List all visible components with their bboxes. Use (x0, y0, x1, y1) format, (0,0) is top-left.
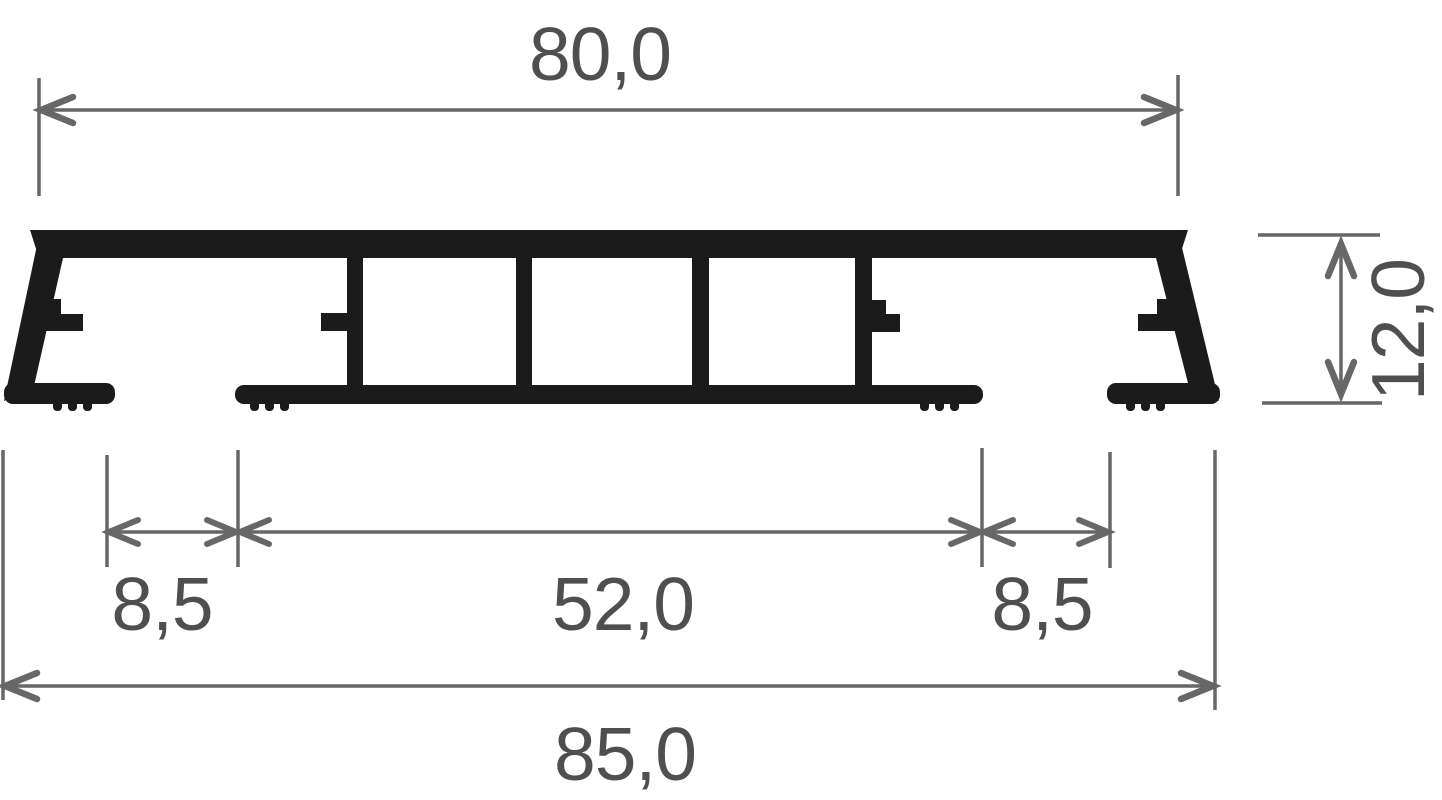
profile-right-foot-teeth (1126, 399, 1165, 411)
profile-cross-section (4, 230, 1220, 411)
label-center-width: 52,0 (552, 562, 694, 646)
label-right-gap: 8,5 (991, 562, 1092, 646)
profile-web-1 (347, 256, 363, 388)
profile-web-2 (516, 256, 532, 388)
profile-right-web-tab (872, 314, 900, 332)
label-left-gap: 8,5 (111, 562, 212, 646)
label-top-width: 80,0 (529, 12, 671, 96)
profile-bottom-bar-left-teeth (250, 400, 289, 411)
profile-web-3 (692, 256, 709, 388)
label-bottom-width: 85,0 (554, 712, 696, 796)
profile-bottom-bar-right-teeth (920, 400, 959, 411)
dim-right-gap (982, 452, 1110, 568)
profile-top-flange (30, 230, 1188, 258)
profile-web-4 (855, 256, 872, 388)
dim-center-width (238, 448, 982, 567)
profile-dimension-drawing: 80,0 12,0 8,5 52,0 8,5 85,0 (0, 0, 1442, 800)
profile-left-wall-tab-step (44, 299, 61, 316)
drawing-canvas: 80,0 12,0 8,5 52,0 8,5 85,0 (0, 0, 1442, 800)
profile-left-web-tab (321, 313, 349, 331)
profile-left-wall-tab (44, 314, 83, 331)
profile-left-foot-teeth (53, 399, 92, 411)
dim-left-gap (107, 450, 238, 567)
profile-right-web-tab-step (872, 300, 886, 316)
label-height: 12,0 (1356, 259, 1440, 401)
